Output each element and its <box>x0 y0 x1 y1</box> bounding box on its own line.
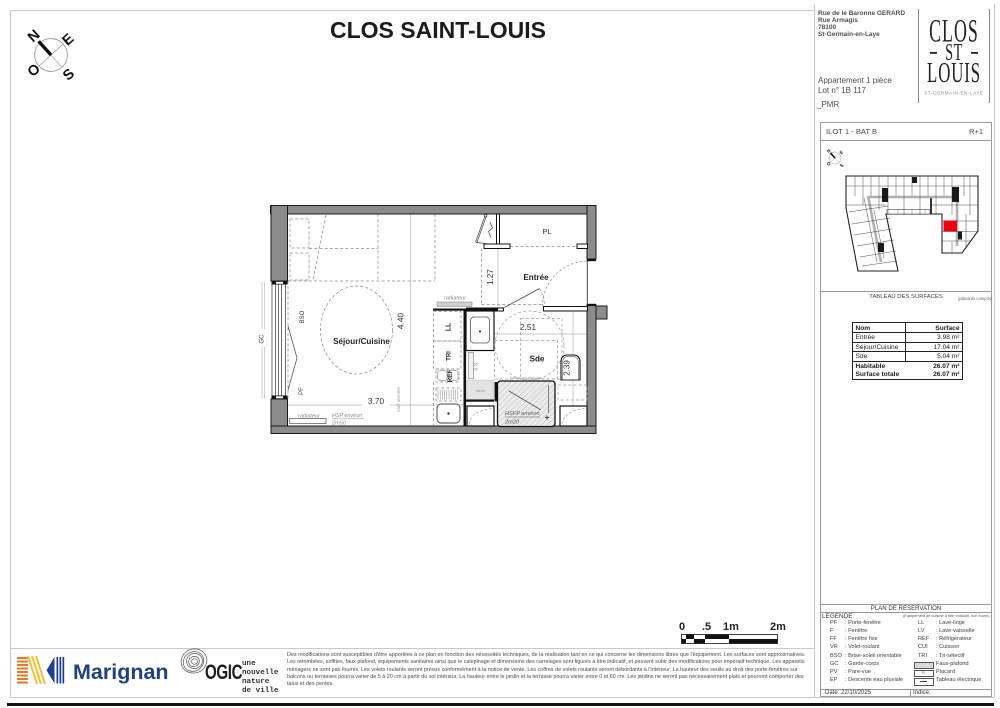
svg-text:radiateur: radiateur <box>444 296 467 302</box>
svg-text:1.27: 1.27 <box>486 269 495 285</box>
svg-text:LOUIS: LOUIS <box>927 58 981 90</box>
svg-text:PL: PL <box>542 227 551 236</box>
svg-text:TRI: TRI <box>447 351 453 361</box>
svg-text:de ville: de ville <box>242 687 279 695</box>
svg-text:niche: niche <box>476 388 486 393</box>
svg-text:E: E <box>59 31 77 50</box>
svg-text:Séjour/Cuisine: Séjour/Cuisine <box>333 337 390 346</box>
svg-text:BSO: BSO <box>300 310 306 323</box>
svg-text:Marignan: Marignan <box>73 660 169 684</box>
svg-text:OGIC: OGIC <box>205 659 242 683</box>
svg-text:HSP environ: HSP environ <box>332 413 362 419</box>
svg-text:REF: REF <box>447 370 454 383</box>
svg-text:4.40: 4.40 <box>396 313 406 330</box>
svg-text:S: S <box>60 66 78 85</box>
svg-text:Vide derrière: Vide derrière <box>396 386 401 412</box>
svg-text:2m50: 2m50 <box>331 421 347 427</box>
svg-text:GC: GC <box>260 334 266 344</box>
svg-text:nouvelle: nouvelle <box>242 669 279 677</box>
svg-text:ST-GERMAIN-EN-LAYE: ST-GERMAIN-EN-LAYE <box>924 91 983 96</box>
svg-text:une: une <box>242 660 256 668</box>
svg-text:Sde: Sde <box>530 355 545 364</box>
svg-text:2m20: 2m20 <box>504 420 520 426</box>
svg-text:LL: LL <box>446 322 453 331</box>
svg-text:nature: nature <box>242 678 270 686</box>
svg-text:S: S <box>839 163 845 169</box>
svg-text:PF: PF <box>299 387 305 395</box>
svg-text:2.39: 2.39 <box>563 360 572 376</box>
svg-text:S.S: S.S <box>474 362 480 371</box>
svg-text:HSFP environ: HSFP environ <box>505 411 540 417</box>
svg-text:2.51: 2.51 <box>520 322 537 332</box>
svg-text:Entrée: Entrée <box>523 273 549 282</box>
svg-text:3.70: 3.70 <box>368 396 385 406</box>
